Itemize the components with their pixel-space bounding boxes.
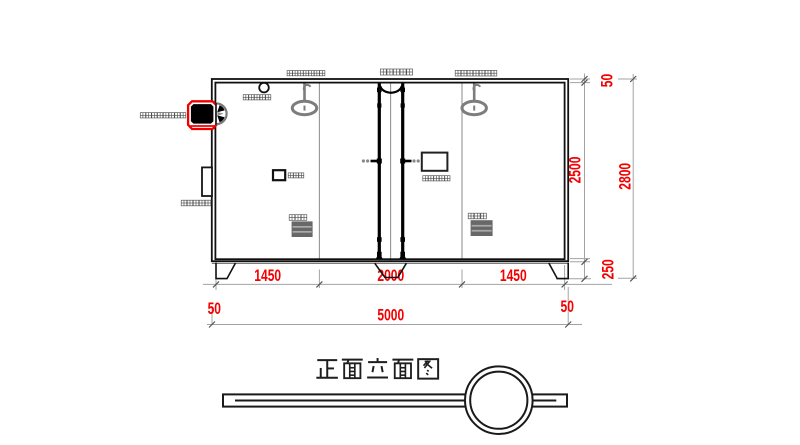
svg-text:2000: 2000 xyxy=(377,267,404,285)
svg-text:50: 50 xyxy=(208,300,221,318)
svg-text:2500: 2500 xyxy=(567,157,585,184)
svg-text:250: 250 xyxy=(600,259,618,279)
svg-text:2800: 2800 xyxy=(617,163,635,190)
svg-text:1450: 1450 xyxy=(500,267,527,285)
svg-text:50: 50 xyxy=(561,298,574,316)
svg-text:1450: 1450 xyxy=(254,267,281,285)
svg-text:50: 50 xyxy=(599,74,617,87)
svg-text:5000: 5000 xyxy=(377,307,404,325)
